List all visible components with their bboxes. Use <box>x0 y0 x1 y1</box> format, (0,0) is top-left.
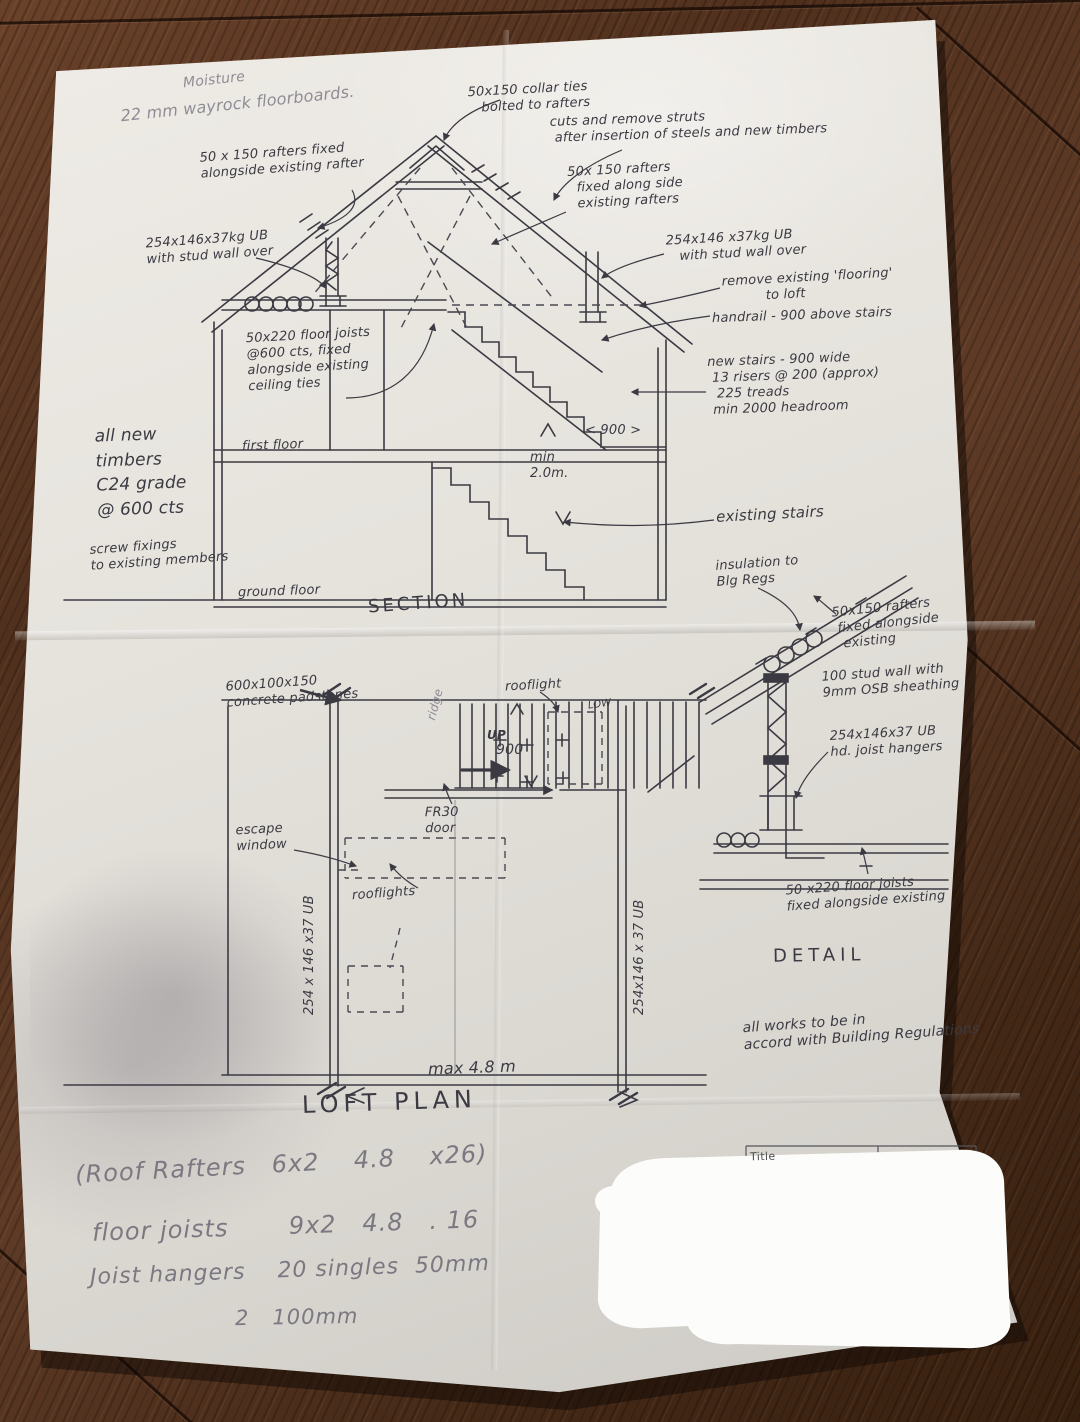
label-all-new-timbers: all new timbers C24 grade @ 600 cts <box>94 421 188 523</box>
label-fr30-door: FR30 door <box>425 805 459 837</box>
label-floor-joists-section: 50x220 floor joists @600 cts, fixed alon… <box>245 325 373 395</box>
label-ub-hangers: 254x146x37 UB hd. joist hangers <box>829 723 943 761</box>
label-new-stairs: new stairs - 900 wide 13 risers @ 200 (a… <box>707 349 881 418</box>
materials-line-4: 2 100mm <box>235 1304 359 1332</box>
loft-plan-title: LOFT PLAN <box>302 1085 478 1120</box>
label-rooflight: rooflight <box>505 677 562 696</box>
label-dim-900-plan: 900 <box>496 742 523 759</box>
label-min-headroom: min 2.0m. <box>530 450 568 482</box>
title-block-title-label: Title <box>750 1150 776 1164</box>
label-first-floor: first floor <box>242 437 304 455</box>
label-rafters-right: 50x 150 rafters fixed along side existin… <box>567 159 684 213</box>
label-ub-right-vertical: 254x146 x 37 UB <box>632 900 648 1015</box>
label-ub-left-vertical: 254 x 146 x37 UB <box>302 895 318 1015</box>
label-dim-max: max 4.8 m <box>428 1056 517 1079</box>
label-collar-ties: 50x150 collar ties bolted to rafters <box>467 79 590 117</box>
sketch-paper <box>0 0 1080 1422</box>
label-escape-window: escape window <box>235 821 287 855</box>
detail-title: DETAIL <box>773 944 866 968</box>
label-insulation: insulation to Blg Regs <box>715 553 800 590</box>
photo-of-plan-on-floor: Moisture 22 mm wayrock floorboards. 50 x… <box>0 0 1080 1422</box>
label-up: UP <box>487 728 506 743</box>
label-dim-900-section: < 900 > <box>585 423 641 439</box>
label-ground-floor: ground floor <box>238 583 321 602</box>
